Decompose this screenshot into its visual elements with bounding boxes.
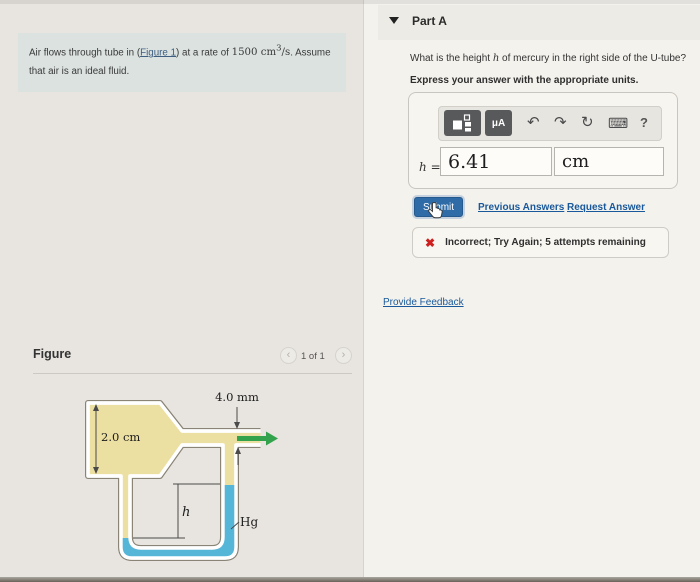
part-a-title: Part A — [412, 14, 447, 28]
figure-1-link[interactable]: Figure 1 — [140, 47, 176, 58]
units-instruction: Express your answer with the appropriate… — [410, 75, 638, 86]
keyboard-icon[interactable]: ⌨ — [608, 113, 628, 133]
height-dimension — [133, 484, 220, 538]
dim-arrow-to-tube-top — [234, 422, 240, 429]
question-text-before: What is the height — [410, 53, 493, 64]
problem-text-3: . Assume — [290, 47, 330, 58]
incorrect-alert: ✖ Incorrect; Try Again; 5 attempts remai… — [412, 227, 669, 258]
alert-message: Incorrect; Try Again; 5 attempts remaini… — [445, 237, 646, 248]
answer-units-input[interactable] — [554, 147, 664, 176]
figure-next-button[interactable]: › — [335, 347, 352, 364]
collapse-triangle-icon[interactable] — [389, 17, 399, 24]
undo-icon[interactable]: ↶ — [527, 113, 540, 133]
photo-bottom-edge — [0, 577, 700, 582]
problem-text-1: Air flows through tube in ( — [29, 47, 140, 58]
problem-statement-box: Air flows through tube in (Figure 1) at … — [18, 33, 346, 92]
error-x-icon: ✖ — [425, 236, 435, 250]
units-button[interactable]: μA — [485, 110, 512, 136]
question-text-after: of mercury in the right side of the U-tu… — [499, 53, 686, 64]
figure-page-indicator: 1 of 1 — [301, 351, 325, 362]
figure-prev-button[interactable]: ‹ — [280, 347, 297, 364]
narrow-diameter-label: 4.0 mm — [215, 390, 259, 404]
help-icon[interactable]: ? — [640, 113, 648, 133]
mastering-physics-page: Part A What is the height h of mercury i… — [0, 0, 700, 582]
flow-rate-value: 1500 cm3/s — [232, 47, 291, 58]
venturi-tube-figure: 2.0 cm 4.0 mm h Hg — [60, 385, 320, 577]
answer-value-input[interactable] — [440, 147, 552, 176]
problem-text-4: that air is an ideal fluid. — [29, 63, 335, 81]
redo-icon[interactable]: ↷ — [554, 113, 567, 133]
question-text: What is the height h of mercury in the r… — [410, 53, 686, 64]
template-squares-icon — [452, 114, 474, 132]
problem-text-2: ) at a rate of — [176, 47, 232, 58]
math-template-button[interactable] — [444, 110, 481, 136]
request-answer-link[interactable]: Request Answer — [567, 202, 645, 213]
mercury-label: Hg — [240, 515, 258, 529]
height-label: h — [182, 505, 190, 520]
wide-diameter-label: 2.0 cm — [101, 430, 140, 444]
part-panel-background — [363, 0, 700, 577]
provide-feedback-link[interactable]: Provide Feedback — [383, 297, 464, 308]
reset-icon[interactable]: ↻ — [581, 113, 594, 133]
previous-answers-link[interactable]: Previous Answers — [478, 202, 564, 213]
mouse-cursor-icon — [428, 202, 443, 219]
figure-divider — [33, 373, 352, 374]
answer-variable-label: h = — [419, 153, 441, 182]
figure-section-title: Figure — [33, 347, 71, 361]
